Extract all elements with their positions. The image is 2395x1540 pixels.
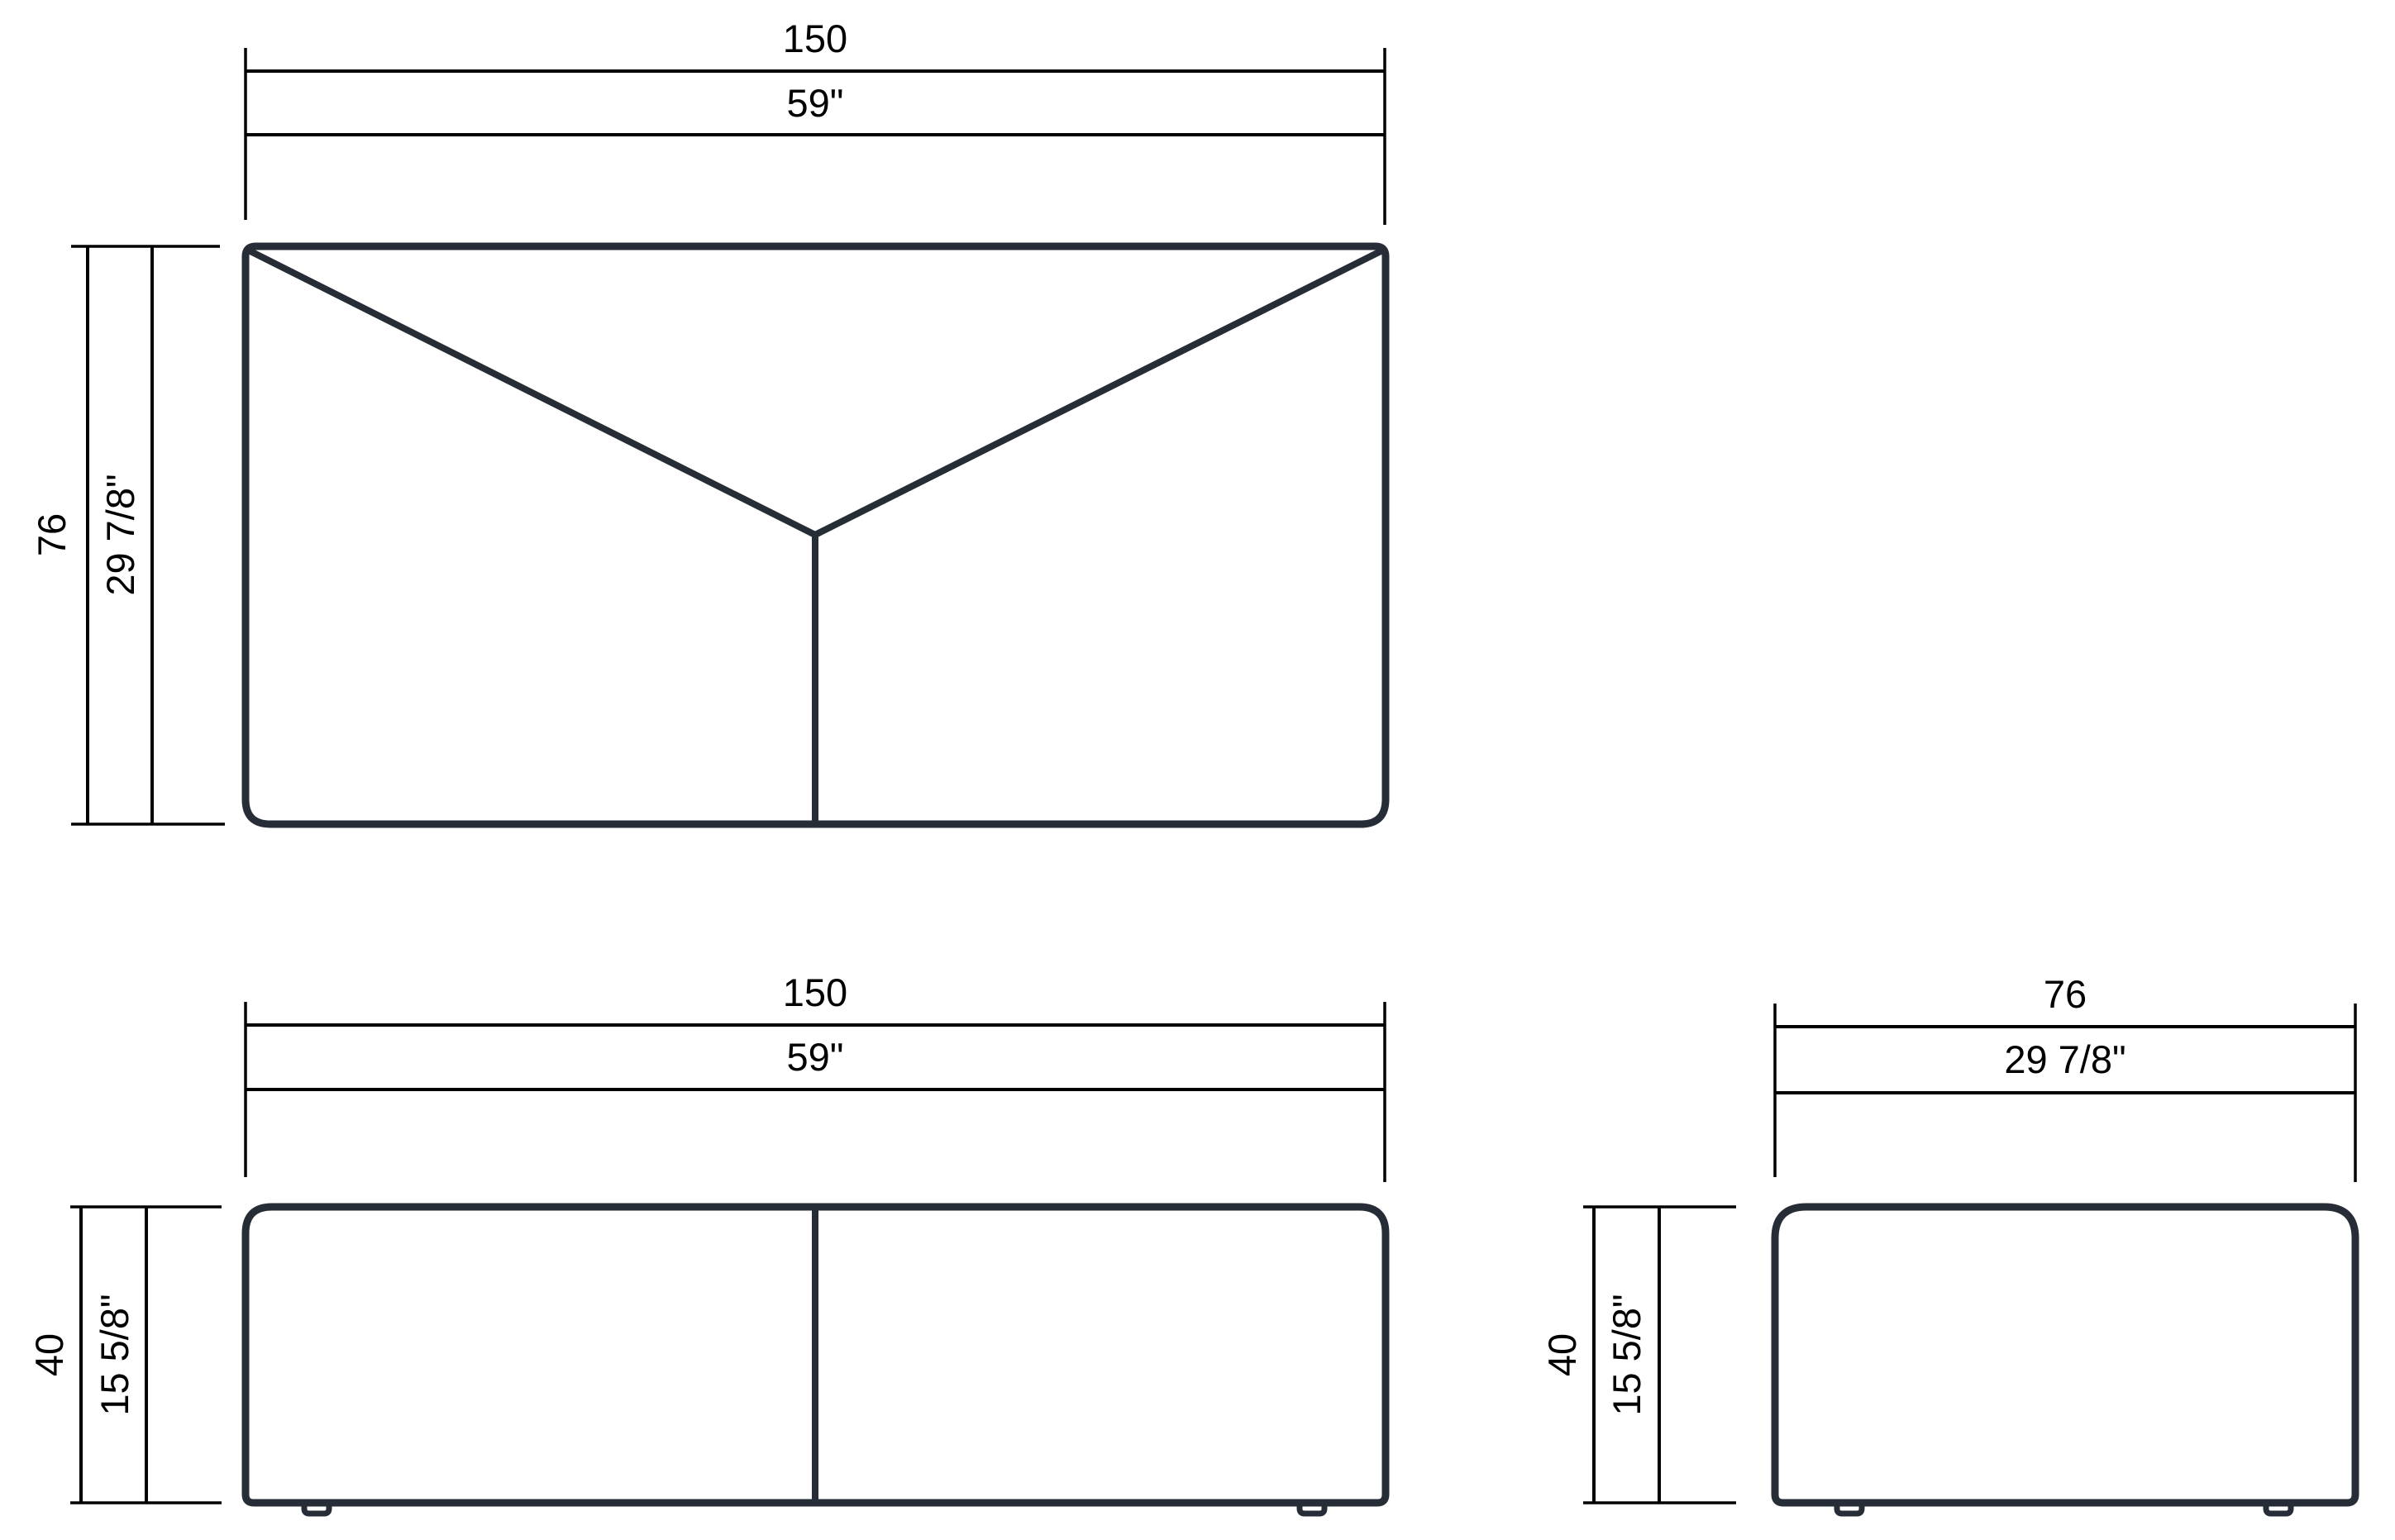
imperial-label: 59" bbox=[787, 1035, 844, 1079]
front-view bbox=[246, 1207, 1386, 1514]
furniture-dimension-diagram: 150 59" 76 29 7/8" 150 59" 40 15 5/8" bbox=[0, 0, 2395, 1540]
imperial-label: 59" bbox=[787, 81, 844, 125]
top-view-seam-right-diagonal bbox=[815, 250, 1382, 535]
side-view-outline bbox=[1775, 1207, 2355, 1503]
top-view bbox=[246, 246, 1386, 824]
top-view-seam-left-diagonal bbox=[249, 250, 815, 535]
metric-label: 150 bbox=[783, 970, 847, 1014]
metric-label: 150 bbox=[783, 17, 847, 60]
imperial-label: 29 7/8" bbox=[98, 474, 142, 595]
front-view-height-dimension: 40 15 5/8" bbox=[27, 1207, 222, 1503]
metric-label: 40 bbox=[27, 1333, 71, 1376]
front-view-width-dimension: 150 59" bbox=[246, 970, 1385, 1182]
imperial-label: 15 5/8" bbox=[1605, 1294, 1648, 1415]
imperial-label: 15 5/8" bbox=[93, 1294, 136, 1415]
metric-label: 40 bbox=[1540, 1333, 1584, 1376]
metric-label: 76 bbox=[2044, 972, 2087, 1016]
side-view-width-dimension: 76 29 7/8" bbox=[1775, 972, 2355, 1182]
side-view bbox=[1775, 1207, 2355, 1514]
top-view-depth-dimension: 76 29 7/8" bbox=[30, 246, 225, 824]
metric-label: 76 bbox=[30, 513, 74, 556]
imperial-label: 29 7/8" bbox=[2004, 1037, 2125, 1081]
top-view-width-dimension: 150 59" bbox=[246, 17, 1385, 225]
dimension-drawing-page: 150 59" 76 29 7/8" 150 59" 40 15 5/8" bbox=[0, 0, 2395, 1540]
side-view-height-dimension: 40 15 5/8" bbox=[1540, 1207, 1736, 1503]
